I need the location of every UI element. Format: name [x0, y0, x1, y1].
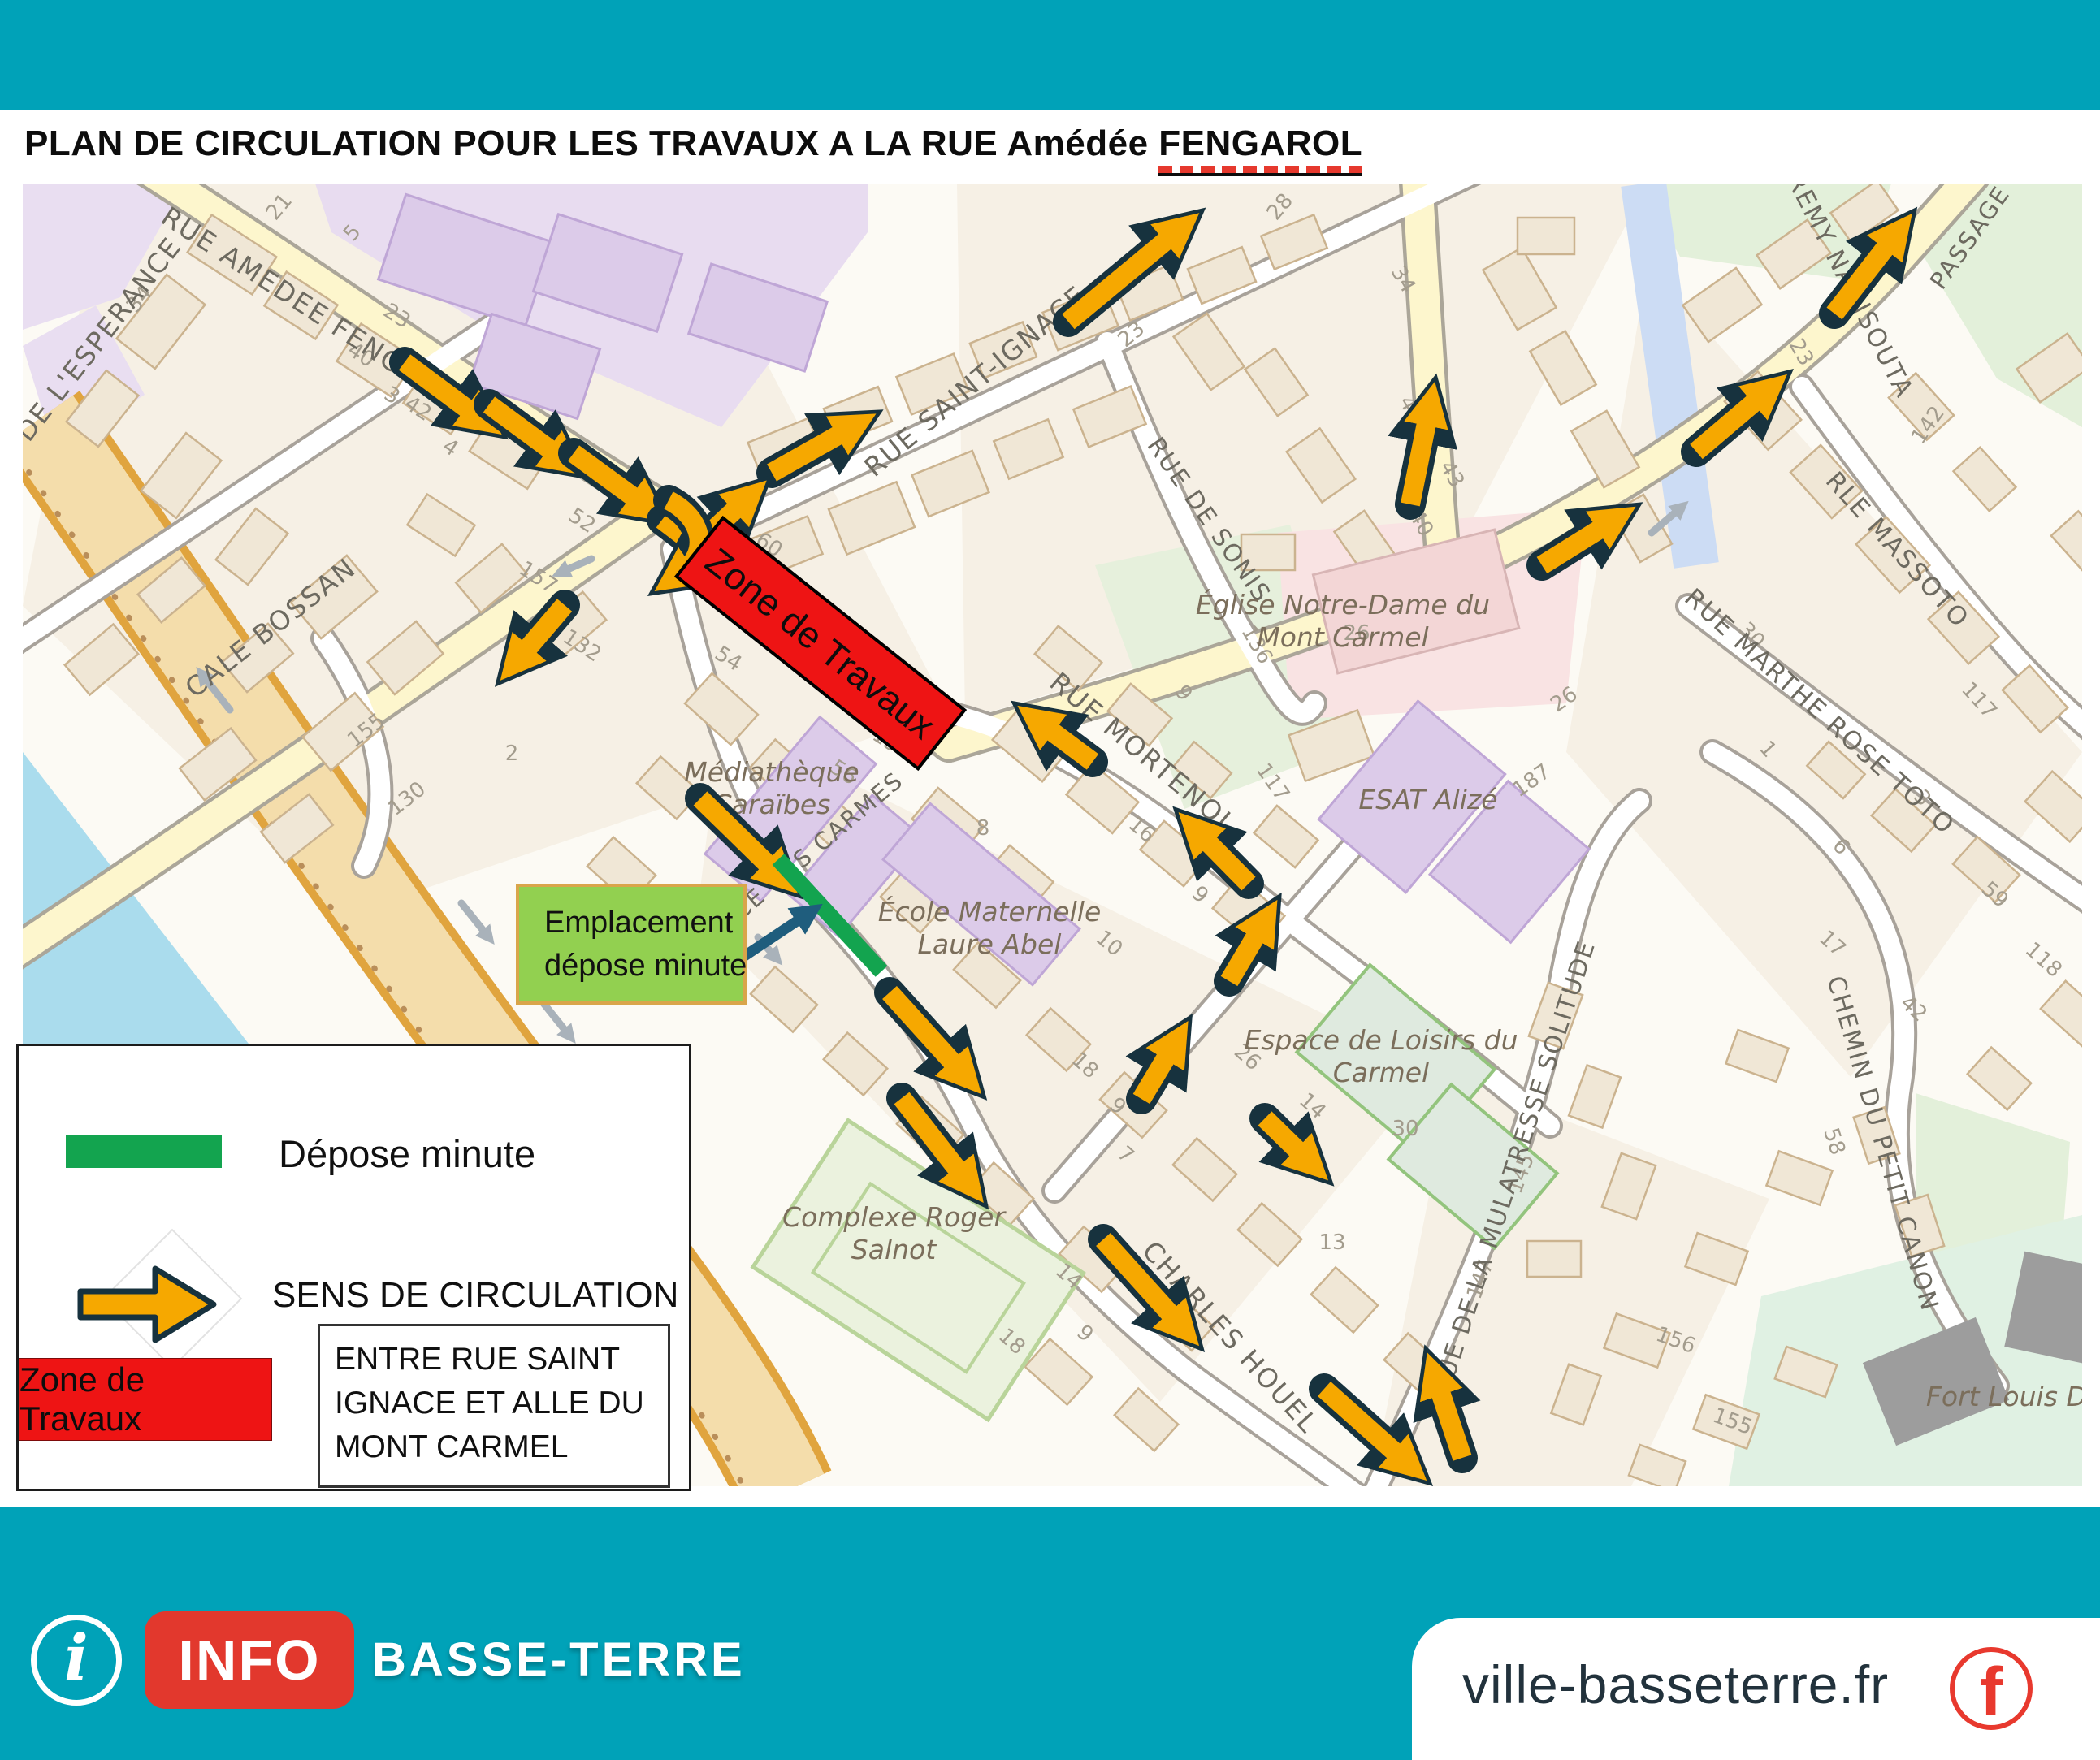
title-text: PLAN DE CIRCULATION POUR LES TRAVAUX A L… [24, 123, 1158, 163]
zone-travaux-swatch: Zone de Travaux [19, 1358, 272, 1441]
website-url: ville-basseterre.fr [1462, 1654, 1889, 1715]
building [2041, 981, 2082, 1048]
basse-terre-brand: BASSE-TERRE [372, 1632, 746, 1687]
building [829, 482, 915, 554]
depose-minute-swatch [66, 1135, 222, 1168]
legend-box: Dépose minute SENS DE CIRCULATION + Zone… [16, 1044, 691, 1491]
building [1629, 1445, 1686, 1486]
building [1725, 1030, 1788, 1082]
poi-label: Fort Louis De [1926, 1381, 2082, 1412]
title-underlined-word: FENGAROL [1158, 125, 1362, 176]
building [1569, 1065, 1621, 1127]
sens-circulation-label: SENS DE CIRCULATION [272, 1275, 678, 1316]
house-number: 58 [1818, 1125, 1850, 1158]
house-number: 9 [1187, 881, 1213, 909]
house-number: 30 [1392, 1117, 1418, 1141]
zone-location-box: ENTRE RUE SAINT IGNACE ET ALLE DU MONT C… [318, 1324, 670, 1488]
info-logo-badge: INFO [145, 1611, 354, 1709]
building [1527, 1241, 1581, 1277]
flyer-page: PLAN DE CIRCULATION POUR LES TRAVAUX A L… [0, 0, 2100, 1760]
oneway-arrow [543, 1002, 569, 1035]
info-icon: i [31, 1615, 122, 1706]
emplacement-line1: Emplacement [544, 906, 734, 940]
oneway-arrow [461, 903, 487, 936]
emplacement-depose-box: Emplacement dépose minute [517, 885, 747, 1003]
building [1254, 806, 1318, 867]
depose-minute-label: Dépose minute [279, 1131, 535, 1176]
building [1766, 1151, 1832, 1204]
poi-label: ESAT Alizé [1358, 784, 1497, 815]
building [1518, 218, 1574, 254]
house-number: 8 [976, 816, 990, 841]
house-number: 13 [1318, 1230, 1345, 1255]
building [1115, 1389, 1178, 1451]
emplacement-line2: dépose minute [544, 949, 747, 983]
building [2051, 511, 2082, 577]
sens-arrow-icon [74, 1259, 228, 1350]
house-number: 2 [505, 742, 519, 766]
house-number: 118 [2020, 937, 2067, 983]
building [1968, 1048, 2031, 1110]
page-title: PLAN DE CIRCULATION POUR LES TRAVAUX A L… [24, 123, 1362, 176]
website-box: ville-basseterre.fr f [1412, 1618, 2100, 1760]
building [1954, 448, 2016, 511]
top-teal-band [0, 0, 2100, 110]
facebook-icon: f [1950, 1647, 2033, 1730]
building [1311, 1267, 1378, 1332]
